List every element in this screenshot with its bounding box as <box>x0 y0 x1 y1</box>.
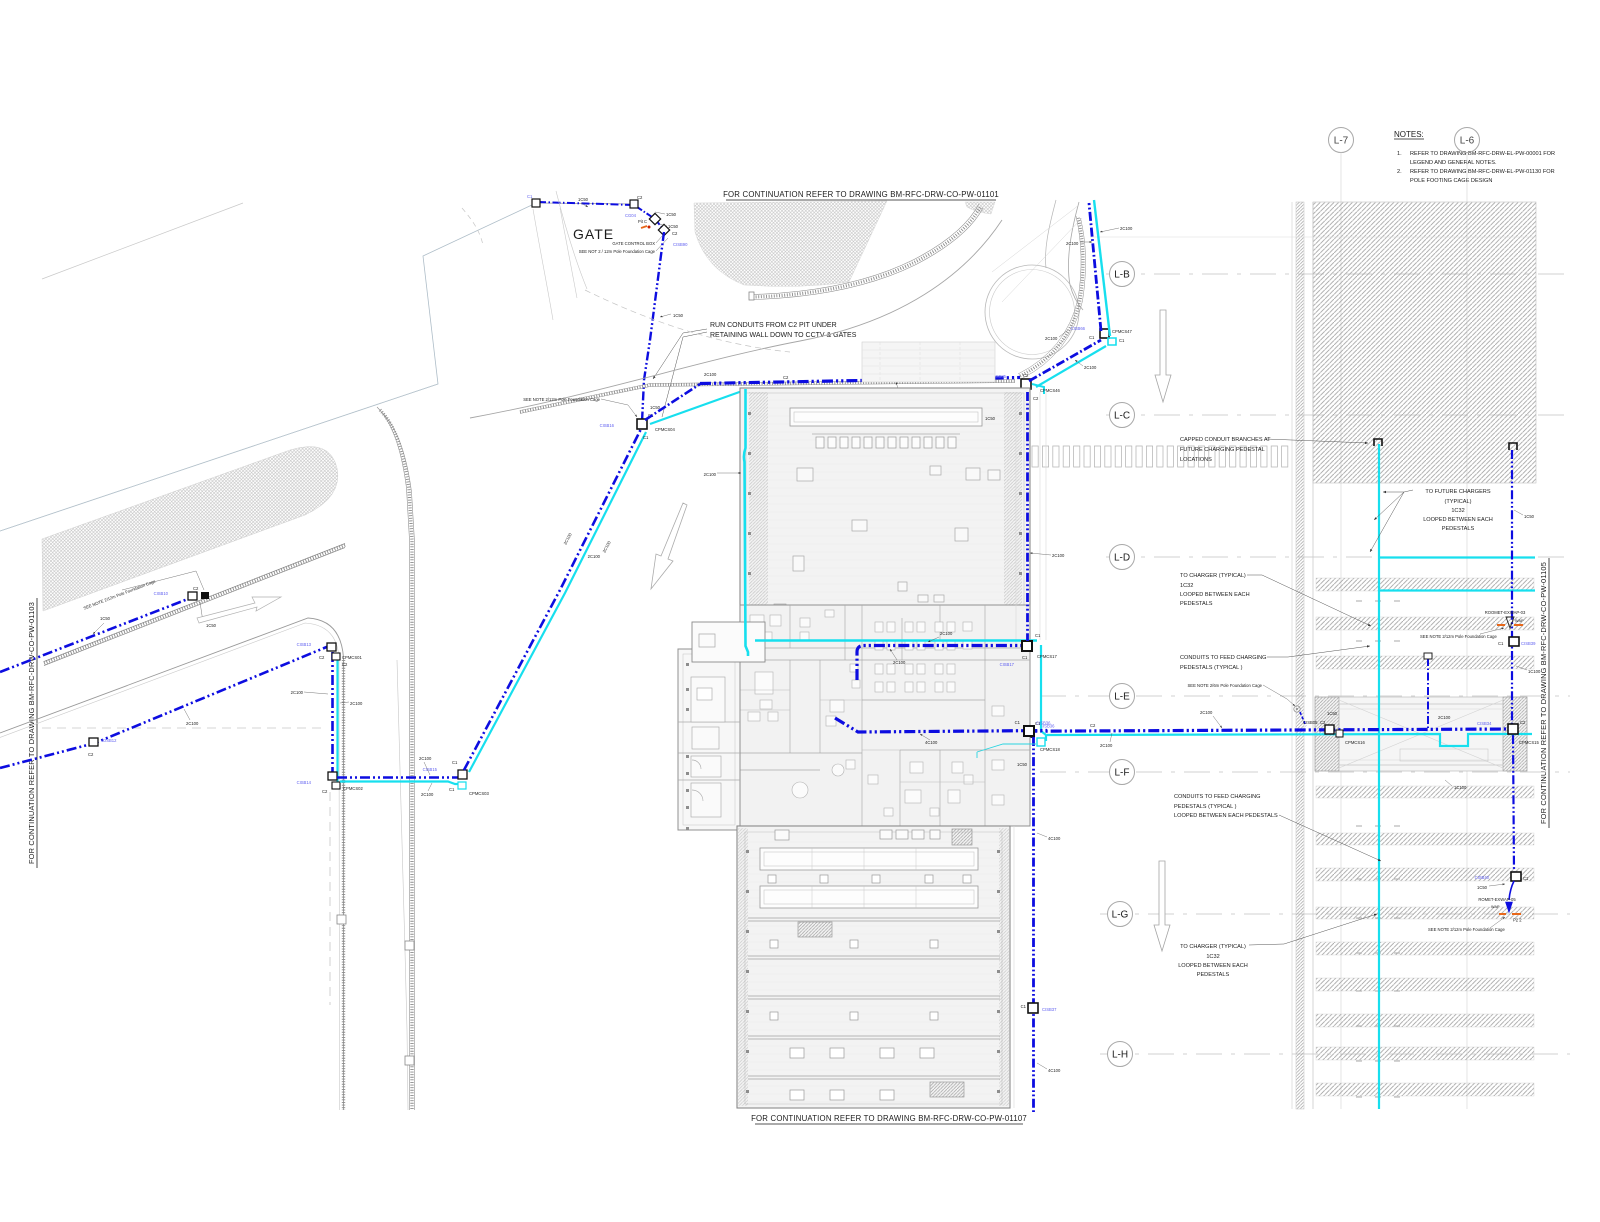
svg-text:L-C: L-C <box>1114 411 1130 422</box>
svg-text:CISB39: CISB39 <box>1521 641 1536 646</box>
svg-text:1C50: 1C50 <box>578 197 589 202</box>
svg-text:RUN CONDUITS FROM C2 PIT UNDER: RUN CONDUITS FROM C2 PIT UNDER <box>710 322 837 329</box>
svg-text:C1: C1 <box>1523 876 1529 881</box>
svg-text:C2: C2 <box>193 586 199 591</box>
svg-text:2C100: 2C100 <box>421 792 434 797</box>
svg-text:REFER TO DRAWING BM-RFC-DRW-EL: REFER TO DRAWING BM-RFC-DRW-EL-PW-00001 … <box>1410 151 1555 157</box>
svg-text:1C32: 1C32 <box>1180 583 1193 589</box>
svg-text:1C100: 1C100 <box>1528 669 1541 674</box>
svg-text:1C32: 1C32 <box>1451 508 1464 514</box>
svg-text:GATE: GATE <box>573 226 614 242</box>
svg-text:2C100: 2C100 <box>1084 365 1097 370</box>
svg-text:CPMCS03: CPMCS03 <box>469 791 489 796</box>
svg-text:CISB05: CISB05 <box>1303 720 1318 725</box>
svg-text:C2: C2 <box>319 655 325 660</box>
svg-text:(TYPICAL): (TYPICAL) <box>1444 499 1471 505</box>
svg-text:1C50: 1C50 <box>673 313 684 318</box>
svg-text:C2: C2 <box>637 195 643 200</box>
svg-text:PEDESTALS (TYPICAL ): PEDESTALS (TYPICAL ) <box>1180 665 1243 671</box>
svg-text:CISB40: CISB40 <box>1475 875 1490 880</box>
svg-text:CISB37: CISB37 <box>1042 1007 1057 1012</box>
svg-text:1C50: 1C50 <box>985 416 996 421</box>
svg-text:C2: C2 <box>1033 396 1039 401</box>
svg-text:CISB17: CISB17 <box>1000 662 1015 667</box>
svg-text:L-6: L-6 <box>1460 136 1475 147</box>
svg-text:C2: C2 <box>1023 373 1029 378</box>
svg-text:LEGEND AND GENERAL NOTES.: LEGEND AND GENERAL NOTES. <box>1410 160 1497 166</box>
svg-text:2C100: 2C100 <box>1200 710 1213 715</box>
svg-text:CISB34: CISB34 <box>1477 721 1492 726</box>
svg-text:CISB90: CISB90 <box>673 242 688 247</box>
svg-text:POLE FOOTING CAGE DESIGN: POLE FOOTING CAGE DESIGN <box>1410 178 1492 184</box>
svg-text:2C100: 2C100 <box>291 690 304 695</box>
svg-text:SEE NOTE 2/12m Pole Foundation: SEE NOTE 2/12m Pole Foundation Cage <box>523 397 600 402</box>
svg-text:C1: C1 <box>1119 338 1125 343</box>
svg-text:FOR CONTINUATION REFER TO DRAW: FOR CONTINUATION REFER TO DRAWING BM-RFC… <box>1539 562 1548 824</box>
svg-text:LOOPED BETWEEN EACH: LOOPED BETWEEN EACH <box>1178 963 1248 969</box>
svg-text:CISB16: CISB16 <box>600 423 615 428</box>
svg-text:CPMCS01: CPMCS01 <box>342 655 362 660</box>
svg-text:CG04: CG04 <box>625 213 637 218</box>
svg-text:FOR CONTINUATION REFER TO DRAW: FOR CONTINUATION REFER TO DRAWING BM-RFC… <box>723 190 999 199</box>
svg-text:C2: C2 <box>1520 720 1526 725</box>
svg-text:1C50: 1C50 <box>1327 711 1338 716</box>
svg-text:P2 2: P2 2 <box>1513 918 1522 923</box>
svg-text:L-H: L-H <box>1112 1050 1128 1061</box>
svg-text:PEDESTALS: PEDESTALS <box>1197 972 1230 978</box>
svg-text:4C100: 4C100 <box>925 740 938 745</box>
svg-text:CISB13: CISB13 <box>297 642 312 647</box>
svg-text:L-G: L-G <box>1112 910 1129 921</box>
svg-text:SEE NOTE 2/12m Pole Foundation: SEE NOTE 2/12m Pole Foundation Cage <box>1428 927 1505 932</box>
svg-text:ROOMET-EXWAP-03: ROOMET-EXWAP-03 <box>1485 610 1526 615</box>
svg-text:2C100: 2C100 <box>1066 241 1079 246</box>
svg-text:PEDESTALS: PEDESTALS <box>1442 526 1475 532</box>
svg-text:C1: C1 <box>527 194 533 199</box>
svg-text:CPMCS15: CPMCS15 <box>1519 740 1539 745</box>
svg-text:CISB14: CISB14 <box>297 780 312 785</box>
svg-text:CPMCS17: CPMCS17 <box>1037 654 1057 659</box>
svg-text:CPMCS16: CPMCS16 <box>1345 740 1365 745</box>
svg-text:1C50: 1C50 <box>1017 762 1028 767</box>
svg-text:ROMET-EXWAP-05: ROMET-EXWAP-05 <box>1478 897 1516 902</box>
svg-text:TO FUTURE CHARGERS: TO FUTURE CHARGERS <box>1425 489 1490 495</box>
svg-text:C2: C2 <box>342 662 348 667</box>
svg-text:C1: C1 <box>452 760 458 765</box>
svg-text:CPMCS18: CPMCS18 <box>1040 747 1060 752</box>
svg-text:FOR CONTINUATION REFER TO DRAW: FOR CONTINUATION REFER TO DRAWING BM-RFC… <box>27 602 36 864</box>
svg-text:LOOPED BETWEEN EACH PEDESTALS: LOOPED BETWEEN EACH PEDESTALS <box>1174 813 1278 819</box>
svg-text:2C100: 2C100 <box>588 554 601 559</box>
svg-text:C2: C2 <box>1090 723 1096 728</box>
svg-text:1C50: 1C50 <box>206 623 217 628</box>
svg-text:C1: C1 <box>643 435 649 440</box>
svg-text:WAP: WAP <box>1491 905 1500 909</box>
svg-text:TO CHARGER (TYPICAL): TO CHARGER (TYPICAL) <box>1180 944 1246 950</box>
svg-text:L-F: L-F <box>1115 768 1130 779</box>
svg-text:2C100: 2C100 <box>704 472 717 477</box>
svg-text:L-D: L-D <box>1114 553 1130 564</box>
svg-text:2C100: 2C100 <box>1045 336 1058 341</box>
svg-text:C1: C1 <box>1015 720 1021 725</box>
svg-text:C2: C2 <box>1320 720 1326 725</box>
svg-text:C2: C2 <box>783 375 789 380</box>
svg-text:CAPPED CONDUIT BRANCHES AT: CAPPED CONDUIT BRANCHES AT <box>1180 437 1271 443</box>
svg-text:CISB36: CISB36 <box>1036 721 1051 726</box>
svg-text:2C100: 2C100 <box>1120 226 1133 231</box>
svg-text:CPMCS47: CPMCS47 <box>1112 329 1132 334</box>
svg-text:FUTURE CHARGING PEDESTAL: FUTURE CHARGING PEDESTAL <box>1180 447 1265 453</box>
svg-text:PEDESTALS: PEDESTALS <box>1180 601 1213 607</box>
svg-text:2.: 2. <box>1397 169 1402 175</box>
svg-text:CISB10: CISB10 <box>154 591 169 596</box>
svg-text:2C100: 2C100 <box>1052 553 1065 558</box>
svg-text:GATE CONTROL BOX: GATE CONTROL BOX <box>612 241 655 246</box>
svg-text:CPMCS04: CPMCS04 <box>655 427 675 432</box>
svg-text:2C100: 2C100 <box>350 701 363 706</box>
svg-text:LOOPED BETWEEN EACH: LOOPED BETWEEN EACH <box>1180 592 1250 598</box>
svg-text:C1: C1 <box>1022 655 1028 660</box>
svg-text:SEE NOTE 2/12m Pole Foundation: SEE NOTE 2/12m Pole Foundation Cage <box>1420 634 1497 639</box>
svg-text:CPMCS46: CPMCS46 <box>1040 388 1060 393</box>
svg-text:CONDUITS TO FEED CHARGING: CONDUITS TO FEED CHARGING <box>1180 655 1267 661</box>
svg-text:NOTES:: NOTES: <box>1394 130 1424 139</box>
svg-text:1C50: 1C50 <box>100 616 111 621</box>
svg-text:PEDESTALS (TYPICAL ): PEDESTALS (TYPICAL ) <box>1174 804 1237 810</box>
svg-text:2C100: 2C100 <box>186 721 199 726</box>
svg-text:L-B: L-B <box>1114 270 1130 281</box>
svg-text:C2: C2 <box>672 231 678 236</box>
svg-text:CISB12: CISB12 <box>102 738 117 743</box>
svg-text:TO CHARGER (TYPICAL): TO CHARGER (TYPICAL) <box>1180 573 1246 579</box>
svg-text:2C100: 2C100 <box>1438 715 1451 720</box>
svg-text:C1: C1 <box>1498 641 1504 646</box>
svg-text:SEE NOTE 2/6m Pole Foundation: SEE NOTE 2/6m Pole Foundation Cage <box>1188 683 1263 688</box>
svg-text:L-7: L-7 <box>1334 136 1349 147</box>
svg-text:CISB66: CISB66 <box>1071 326 1086 331</box>
svg-text:CISB15: CISB15 <box>423 767 438 772</box>
svg-text:CONDUITS TO FEED CHARGING: CONDUITS TO FEED CHARGING <box>1174 794 1261 800</box>
svg-text:SEE NOT 2 / 12m Pole Foundatio: SEE NOT 2 / 12m Pole Foundation Cage <box>579 249 656 254</box>
svg-text:1C100: 1C100 <box>1454 785 1467 790</box>
svg-text:REFER TO DRAWING BM-RFC-DRW-EL: REFER TO DRAWING BM-RFC-DRW-EL-PW-01130 … <box>1410 169 1555 175</box>
svg-text:2C100: 2C100 <box>419 756 432 761</box>
svg-text:C1: C1 <box>1089 335 1095 340</box>
svg-text:4C100: 4C100 <box>1048 1068 1061 1073</box>
svg-text:1C32: 1C32 <box>1206 954 1219 960</box>
svg-text:2C100: 2C100 <box>1100 743 1113 748</box>
svg-text:1C50: 1C50 <box>1477 885 1488 890</box>
svg-text:CPMCS02: CPMCS02 <box>343 786 363 791</box>
svg-text:C1: C1 <box>1035 633 1041 638</box>
svg-text:2C100: 2C100 <box>893 660 906 665</box>
svg-text:WAP: WAP <box>1515 619 1524 623</box>
svg-text:LOCATIONS: LOCATIONS <box>1180 457 1212 463</box>
svg-text:C1: C1 <box>449 787 455 792</box>
svg-text:2C100: 2C100 <box>940 631 953 636</box>
svg-text:1C50: 1C50 <box>666 212 677 217</box>
svg-text:L-E: L-E <box>1114 692 1130 703</box>
svg-text:2C100: 2C100 <box>704 372 717 377</box>
svg-text:1C50: 1C50 <box>668 224 679 229</box>
svg-text:Pit C: Pit C <box>638 219 647 224</box>
svg-text:C2: C2 <box>322 789 328 794</box>
svg-text:FOR CONTINUATION REFER TO DRAW: FOR CONTINUATION REFER TO DRAWING BM-RFC… <box>751 1114 1027 1123</box>
svg-text:C2: C2 <box>88 752 94 757</box>
svg-text:1.: 1. <box>1397 151 1402 157</box>
svg-text:1C50: 1C50 <box>1524 514 1535 519</box>
svg-text:C1: C1 <box>1021 1004 1027 1009</box>
svg-text:LOOPED BETWEEN EACH: LOOPED BETWEEN EACH <box>1423 517 1493 523</box>
svg-text:4C100: 4C100 <box>1048 836 1061 841</box>
